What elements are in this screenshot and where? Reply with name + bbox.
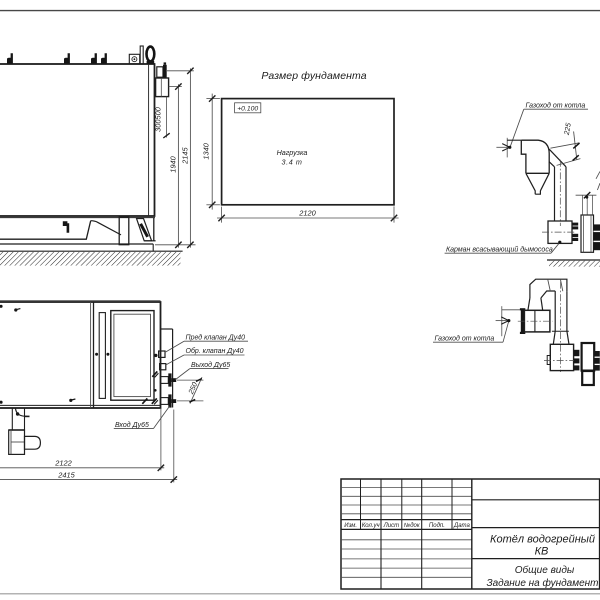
svg-text:+0.100: +0.100: [237, 105, 258, 112]
svg-text:2415: 2415: [57, 471, 75, 480]
svg-text:Обр. клапан Ду40: Обр. клапан Ду40: [186, 347, 244, 355]
svg-text:Подп.: Подп.: [429, 523, 445, 529]
svg-text:Газоход от котла: Газоход от котла: [435, 334, 495, 342]
svg-text:1340: 1340: [201, 142, 210, 159]
svg-text:2122: 2122: [54, 459, 71, 468]
svg-text:2120: 2120: [298, 209, 316, 218]
svg-text:Вход Ду65: Вход Ду65: [115, 421, 149, 429]
svg-text:Выход Ду65: Выход Ду65: [191, 361, 230, 369]
svg-text:Пред клапан Ду40: Пред клапан Ду40: [186, 333, 246, 341]
svg-text:Размер фундамента: Размер фундамента: [261, 70, 366, 82]
svg-text:300500: 300500: [154, 106, 163, 132]
svg-text:3.4 т: 3.4 т: [282, 158, 303, 167]
svg-text:Карман всасывающий дымососа: Карман всасывающий дымососа: [446, 245, 553, 253]
svg-text:2145: 2145: [180, 146, 189, 164]
svg-text:Газоход от котла: Газоход от котла: [526, 101, 586, 109]
svg-text:Лист: Лист: [383, 523, 399, 529]
svg-text:Котёл водогрейный: Котёл водогрейный: [490, 533, 595, 545]
svg-text:1940: 1940: [168, 155, 177, 172]
svg-text:Задание на фундамент: Задание на фундамент: [486, 577, 598, 589]
svg-text:Изм.: Изм.: [344, 523, 357, 529]
svg-text:Нагрузка: Нагрузка: [277, 148, 308, 157]
svg-text:№док: №док: [404, 522, 421, 529]
svg-text:Дата: Дата: [453, 523, 470, 529]
svg-text:КВ: КВ: [535, 545, 549, 557]
svg-text:Кол.уч: Кол.уч: [362, 523, 380, 529]
svg-text:Общие виды: Общие виды: [515, 564, 575, 576]
